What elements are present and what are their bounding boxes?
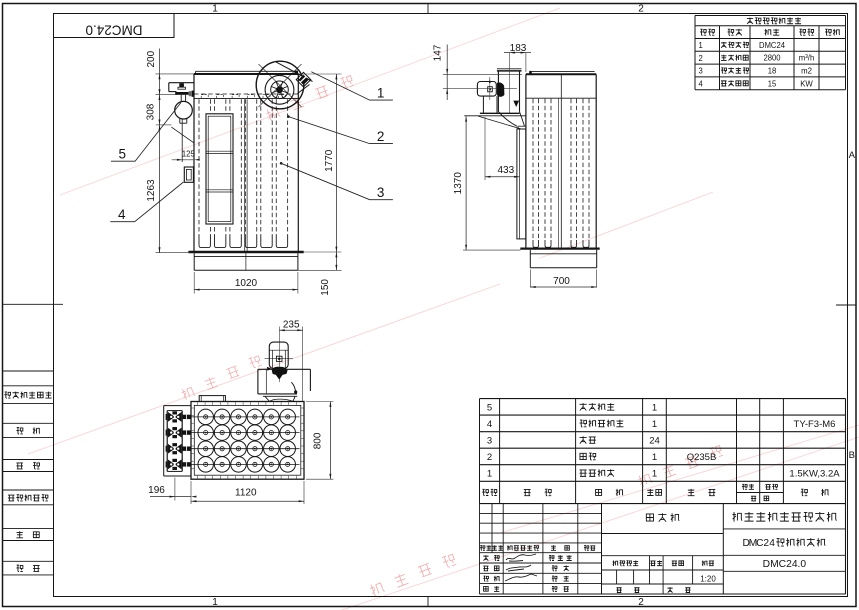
svg-text:1770: 1770 [324,149,335,172]
svg-text:2: 2 [699,54,704,63]
svg-text:1: 1 [652,468,657,479]
svg-text:125: 125 [182,149,195,158]
svg-text:1: 1 [487,468,492,479]
svg-text:1.5KW,3.2A: 1.5KW,3.2A [789,468,840,479]
svg-text:1370: 1370 [453,172,464,195]
svg-text:1: 1 [699,41,704,50]
svg-text:433: 433 [497,165,514,176]
svg-text:3: 3 [699,66,704,75]
svg-text:1: 1 [652,452,657,463]
svg-text:2800: 2800 [763,53,780,62]
svg-text:2: 2 [638,4,644,15]
svg-text:15: 15 [768,79,777,88]
svg-text:18: 18 [768,66,777,75]
svg-text:308: 308 [145,103,156,120]
svg-text:147: 147 [432,44,443,61]
svg-text:200: 200 [146,50,157,67]
svg-text:DMC24.0: DMC24.0 [85,23,142,38]
svg-text:DMC24.0: DMC24.0 [763,559,807,570]
svg-text:TY-F3-M6: TY-F3-M6 [794,419,836,430]
svg-text:1: 1 [652,402,657,413]
svg-text:B: B [849,450,855,461]
svg-text:1: 1 [652,419,657,430]
svg-text:24: 24 [649,435,660,446]
svg-text:196: 196 [148,485,165,496]
svg-text:KW: KW [800,79,813,88]
svg-text:m2: m2 [801,66,812,75]
svg-text:150: 150 [320,279,331,296]
svg-text:1120: 1120 [235,487,257,498]
svg-text:A: A [849,150,856,161]
svg-text:1:20: 1:20 [700,574,716,583]
svg-text:4: 4 [487,419,492,430]
svg-text:235: 235 [283,319,300,330]
svg-text:3: 3 [487,435,492,446]
svg-text:1: 1 [212,597,218,608]
svg-text:m³/h: m³/h [799,53,815,62]
svg-text:183: 183 [510,43,527,54]
svg-text:4: 4 [118,207,126,222]
svg-text:5: 5 [487,402,492,413]
svg-text:1: 1 [377,85,385,100]
svg-text:1263: 1263 [146,179,157,202]
svg-text:2: 2 [377,129,385,144]
svg-text:800: 800 [312,432,323,449]
svg-text:4: 4 [699,79,704,88]
svg-text:1: 1 [212,4,218,15]
svg-text:5: 5 [119,146,127,161]
svg-text:DMC24: DMC24 [759,41,785,50]
svg-text:700: 700 [553,276,570,287]
svg-text:4: 4 [769,538,775,549]
svg-text:2: 2 [487,452,492,463]
svg-text:1020: 1020 [235,278,258,289]
svg-text:2: 2 [638,597,644,608]
svg-text:3: 3 [377,185,385,200]
